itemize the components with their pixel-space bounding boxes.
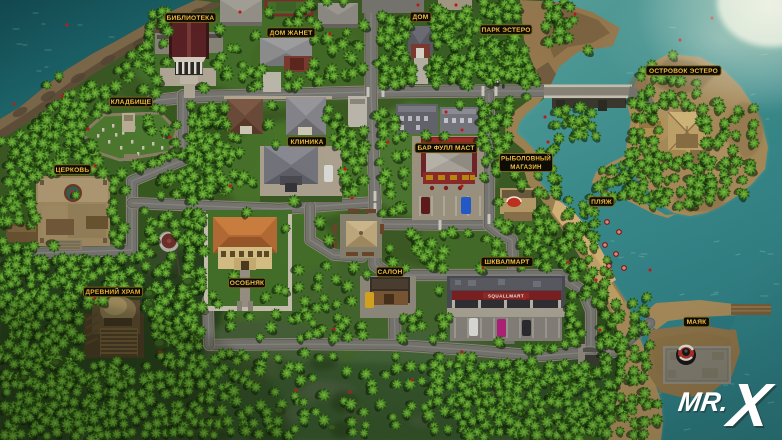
svg-text:КЛИНИКА: КЛИНИКА: [290, 139, 323, 146]
svg-text:РЫБОЛОВНЫЙ: РЫБОЛОВНЫЙ: [501, 155, 551, 163]
svg-text:ШКВАЛМАРТ: ШКВАЛМАРТ: [485, 259, 530, 266]
svg-text:КЛАДБИЩЕ: КЛАДБИЩЕ: [111, 99, 152, 106]
svg-text:БАР ФУЛЛ МАСТ: БАР ФУЛЛ МАСТ: [417, 145, 474, 152]
svg-text:ПЛЯЖ: ПЛЯЖ: [591, 199, 612, 206]
svg-text:САЛОН: САЛОН: [378, 269, 403, 276]
svg-text:ЦЕРКОВЬ: ЦЕРКОВЬ: [56, 167, 90, 174]
svg-text:МАЯК: МАЯК: [687, 319, 708, 326]
svg-text:ДОМ: ДОМ: [413, 14, 429, 21]
svg-text:ОСОБНЯК: ОСОБНЯК: [230, 280, 265, 287]
svg-text:MR.: MR.: [676, 386, 730, 417]
svg-text:БИБЛИОТЕКА: БИБЛИОТЕКА: [167, 15, 215, 22]
svg-text:ПАРК ЭСТЕРО: ПАРК ЭСТЕРО: [481, 27, 530, 34]
svg-text:МАГАЗИН: МАГАЗИН: [510, 164, 542, 171]
svg-text:ДРЕВНИЙ ХРАМ: ДРЕВНИЙ ХРАМ: [85, 287, 141, 296]
svg-text:ОСТРОВОК ЭСТЕРО: ОСТРОВОК ЭСТЕРО: [649, 68, 718, 75]
svg-text:ДОМ ЖАНЕТ: ДОМ ЖАНЕТ: [270, 30, 313, 37]
